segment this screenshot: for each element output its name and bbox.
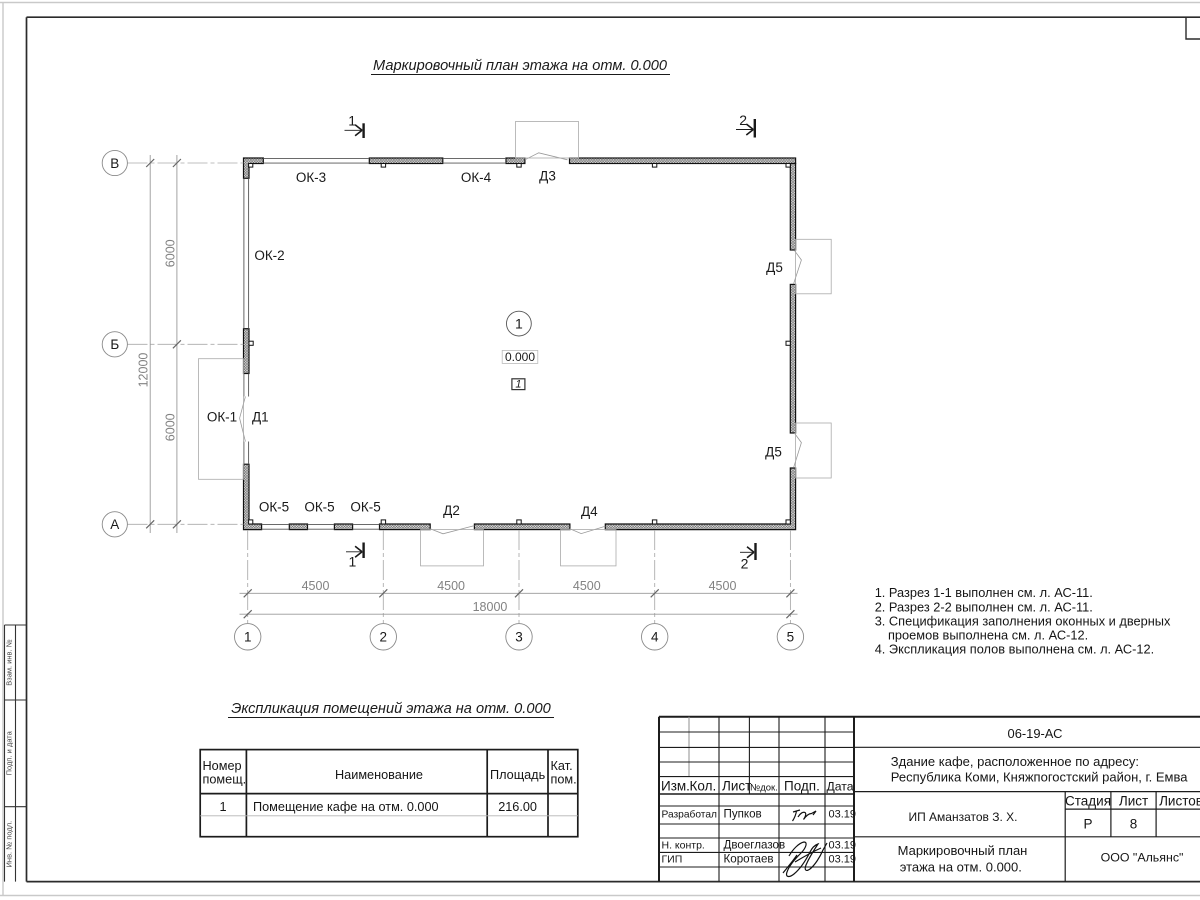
svg-text:Площадь: Площадь (490, 768, 546, 782)
svg-text:Экспликация помещений этажа на: Экспликация помещений этажа на отм. 0.00… (231, 701, 550, 717)
svg-text:Д1: Д1 (252, 410, 269, 425)
svg-text:Н. контр.: Н. контр. (662, 840, 705, 852)
svg-text:ОК-2: ОК-2 (254, 248, 284, 263)
svg-text:Лист: Лист (1119, 794, 1148, 809)
svg-text:ОК-5: ОК-5 (350, 500, 380, 515)
svg-text:1: 1 (348, 113, 356, 129)
svg-text:8: 8 (1130, 817, 1138, 832)
svg-text:Дата: Дата (827, 780, 854, 794)
svg-text:Маркировочный план этажа на от: Маркировочный план этажа на отм. 0.000 (373, 58, 667, 74)
svg-text:ОК-5: ОК-5 (304, 500, 334, 515)
svg-text:Д3: Д3 (539, 169, 556, 184)
svg-text:2: 2 (380, 630, 388, 645)
svg-text:4: 4 (651, 630, 659, 645)
svg-text:Номер: Номер (203, 759, 242, 773)
svg-text:4500: 4500 (573, 579, 601, 593)
svg-text:Подп.: Подп. (784, 779, 820, 794)
svg-text:216.00: 216.00 (498, 800, 537, 814)
svg-text:3. Спецификация заполнения око: 3. Спецификация заполнения оконных и две… (875, 613, 1171, 628)
svg-text:6000: 6000 (164, 239, 178, 267)
svg-text:4500: 4500 (302, 579, 330, 593)
svg-text:1: 1 (244, 630, 252, 645)
svg-text:Разработал: Разработал (662, 809, 718, 821)
svg-text:Б: Б (110, 337, 119, 352)
svg-text:пом.: пом. (551, 773, 577, 787)
svg-text:Кол.: Кол. (690, 779, 717, 794)
svg-text:03.19: 03.19 (829, 840, 857, 852)
svg-text:А: А (110, 517, 119, 532)
svg-text:Лист: Лист (722, 779, 751, 794)
svg-text:1: 1 (219, 800, 226, 814)
svg-text:1: 1 (349, 554, 357, 570)
svg-text:помещ.: помещ. (203, 773, 247, 787)
svg-text:3: 3 (515, 630, 523, 645)
svg-text:Пупков: Пупков (724, 808, 762, 821)
svg-text:ОК-4: ОК-4 (461, 170, 492, 185)
svg-text:Д2: Д2 (443, 503, 460, 518)
svg-text:Д5: Д5 (765, 445, 782, 460)
svg-text:4. Экспликация полов выполнена: 4. Экспликация полов выполнена см. л. АС… (875, 641, 1155, 656)
svg-text:12000: 12000 (136, 353, 150, 388)
svg-text:ГИП: ГИП (662, 854, 683, 866)
svg-text:В: В (110, 156, 119, 171)
svg-text:Помещение кафе на отм. 0.000: Помещение кафе на отм. 0.000 (253, 800, 439, 814)
svg-text:03.19: 03.19 (829, 854, 857, 866)
svg-text:Взам. инв. №: Взам. инв. № (5, 639, 14, 685)
svg-text:Д5: Д5 (766, 260, 783, 275)
svg-text:4500: 4500 (437, 579, 465, 593)
svg-text:6000: 6000 (164, 413, 178, 441)
svg-text:ИП Аманзатов З. Х.: ИП Аманзатов З. Х. (908, 810, 1017, 824)
svg-text:Коротаев: Коротаев (724, 853, 774, 866)
svg-text:этажа на отм. 0.000.: этажа на отм. 0.000. (900, 860, 1022, 875)
svg-text:2: 2 (741, 556, 749, 572)
svg-text:Кат.: Кат. (551, 759, 573, 773)
svg-text:ОК-5: ОК-5 (259, 500, 289, 515)
svg-text:проемов выполнена см. л. АС-12: проемов выполнена см. л. АС-12. (888, 627, 1088, 642)
svg-text:18000: 18000 (473, 600, 508, 614)
svg-text:Изм.: Изм. (661, 779, 690, 794)
svg-text:1. Разрез 1-1 выполнен см. л.: 1. Разрез 1-1 выполнен см. л. АС-11. (875, 585, 1093, 600)
svg-text:Инв. № подл.: Инв. № подл. (5, 821, 14, 868)
svg-text:2: 2 (739, 112, 747, 128)
svg-text:1: 1 (515, 316, 523, 332)
svg-text:ОК-3: ОК-3 (296, 170, 326, 185)
svg-text:№док.: №док. (750, 783, 778, 794)
svg-text:Листов: Листов (1159, 794, 1200, 809)
svg-text:ООО "Альянс": ООО "Альянс" (1101, 851, 1184, 865)
svg-text:06-19-АС: 06-19-АС (1008, 726, 1063, 741)
svg-text:2. Разрез 2-2 выполнен см. л.: 2. Разрез 2-2 выполнен см. л. АС-11. (875, 599, 1093, 614)
svg-text:Маркировочный план: Маркировочный план (898, 843, 1028, 858)
svg-text:Стадия: Стадия (1065, 794, 1111, 809)
svg-text:Подп. и дата: Подп. и дата (5, 730, 14, 775)
svg-text:5: 5 (787, 630, 795, 645)
svg-text:Двоеглазов: Двоеглазов (724, 839, 786, 852)
svg-text:Здание кафе, расположенное по: Здание кафе, расположенное по адресу: (891, 754, 1139, 769)
svg-text:03.19: 03.19 (829, 809, 857, 821)
svg-text:Д4: Д4 (581, 504, 598, 519)
svg-text:0.000: 0.000 (505, 350, 535, 364)
svg-text:Республика Коми, Княжпогостски: Республика Коми, Княжпогостский район, г… (891, 770, 1188, 785)
svg-text:Р: Р (1083, 817, 1092, 832)
svg-text:Наименование: Наименование (335, 768, 423, 782)
svg-text:1: 1 (515, 379, 521, 391)
svg-text:ОК-1: ОК-1 (207, 410, 237, 425)
svg-text:4500: 4500 (709, 579, 737, 593)
